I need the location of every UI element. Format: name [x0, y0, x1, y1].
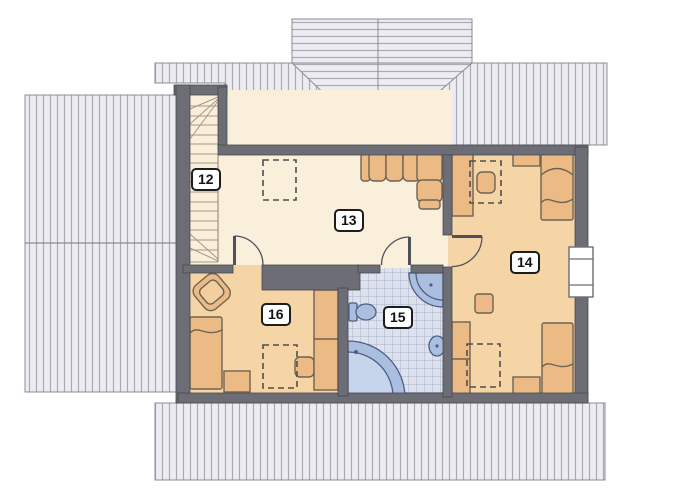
wall-right-lower: [575, 297, 588, 403]
wall-14-bath: [443, 267, 452, 397]
floor-plan-drawing: [0, 0, 700, 501]
room-label-14: 14: [510, 251, 540, 274]
wall-bottom: [178, 393, 588, 403]
stool: [475, 294, 493, 313]
wall-bath-top-left: [358, 265, 380, 273]
chair-room16: [295, 357, 314, 377]
bed-room16: [190, 317, 222, 389]
window-right: [569, 247, 593, 297]
roof-gable-rect: [292, 19, 472, 63]
wall-13-14: [443, 155, 452, 235]
desk-chair: [477, 172, 495, 193]
room-label-13: 13: [334, 209, 364, 232]
wall-chimney-block: [262, 265, 360, 290]
wall-top: [218, 145, 588, 155]
bed-room14-top: [541, 150, 573, 220]
wall-13-16: [183, 265, 233, 273]
wall-16-bath: [338, 288, 348, 396]
room-label-15: 15: [383, 306, 413, 329]
room-label-12: 12: [191, 168, 221, 191]
wall-bath-top-right: [411, 265, 443, 273]
wall-left: [176, 85, 190, 403]
floor-plan: 12 13 14 15 16: [0, 0, 700, 501]
bed-room14-bottom: [542, 323, 573, 396]
toilet: [349, 303, 376, 321]
roof-bottom-band: [155, 403, 605, 480]
wall-stair-right: [218, 87, 227, 149]
nightstand-room16: [224, 371, 250, 392]
room-label-16: 16: [261, 303, 291, 326]
wall-right-upper: [575, 147, 588, 247]
wardrobe-room16: [314, 290, 338, 390]
